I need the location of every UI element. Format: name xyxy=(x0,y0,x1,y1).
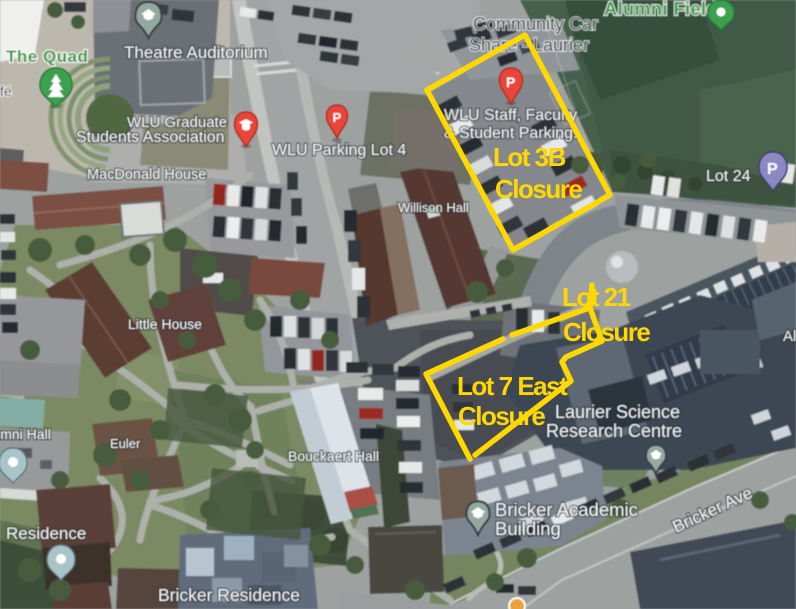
svg-text:Euler: Euler xyxy=(110,436,141,451)
svg-text:Closure: Closure xyxy=(458,401,545,431)
svg-text:WLU Staff, Faculty: WLU Staff, Faculty xyxy=(444,107,577,124)
svg-text:Bricker Academic: Bricker Academic xyxy=(495,499,638,520)
svg-text:Alumni Hall: Alumni Hall xyxy=(0,426,51,442)
svg-text:Building: Building xyxy=(495,518,561,539)
svg-text:Closure: Closure xyxy=(563,317,650,347)
svg-text:Residence: Residence xyxy=(6,524,86,543)
svg-text:Bouckaert Hall: Bouckaert Hall xyxy=(288,448,379,464)
svg-text:& Student Parking.: & Student Parking. xyxy=(444,125,577,142)
svg-text:WLU Parking Lot 4: WLU Parking Lot 4 xyxy=(272,142,406,159)
svg-text:Research Centre: Research Centre xyxy=(546,421,682,441)
svg-text:Lot 21: Lot 21 xyxy=(562,282,631,312)
svg-text:Lot 3B: Lot 3B xyxy=(493,142,566,172)
svg-text:Willison Hall: Willison Hall xyxy=(398,200,469,215)
svg-text:MacDonald House: MacDonald House xyxy=(87,167,206,183)
svg-text:Al: Al xyxy=(783,328,796,345)
svg-text:fé: fé xyxy=(0,83,12,99)
svg-text:Lot 7 East: Lot 7 East xyxy=(457,371,568,401)
svg-text:Alumni Field: Alumni Field xyxy=(604,0,718,19)
svg-text:Bricker Residence: Bricker Residence xyxy=(158,585,300,605)
svg-text:Laurier Science: Laurier Science xyxy=(555,402,680,422)
svg-text:P: P xyxy=(506,74,515,90)
svg-text:The Quad: The Quad xyxy=(6,47,88,66)
svg-text:Theatre Auditorium: Theatre Auditorium xyxy=(124,43,268,62)
svg-text:Community Car: Community Car xyxy=(473,14,598,34)
svg-text:Students Association: Students Association xyxy=(76,129,225,146)
svg-text:P: P xyxy=(767,161,778,178)
svg-text:Closure: Closure xyxy=(495,174,582,204)
svg-text:Lot 24: Lot 24 xyxy=(706,168,751,185)
svg-text:P: P xyxy=(333,110,342,125)
svg-text:Little House: Little House xyxy=(128,316,202,332)
